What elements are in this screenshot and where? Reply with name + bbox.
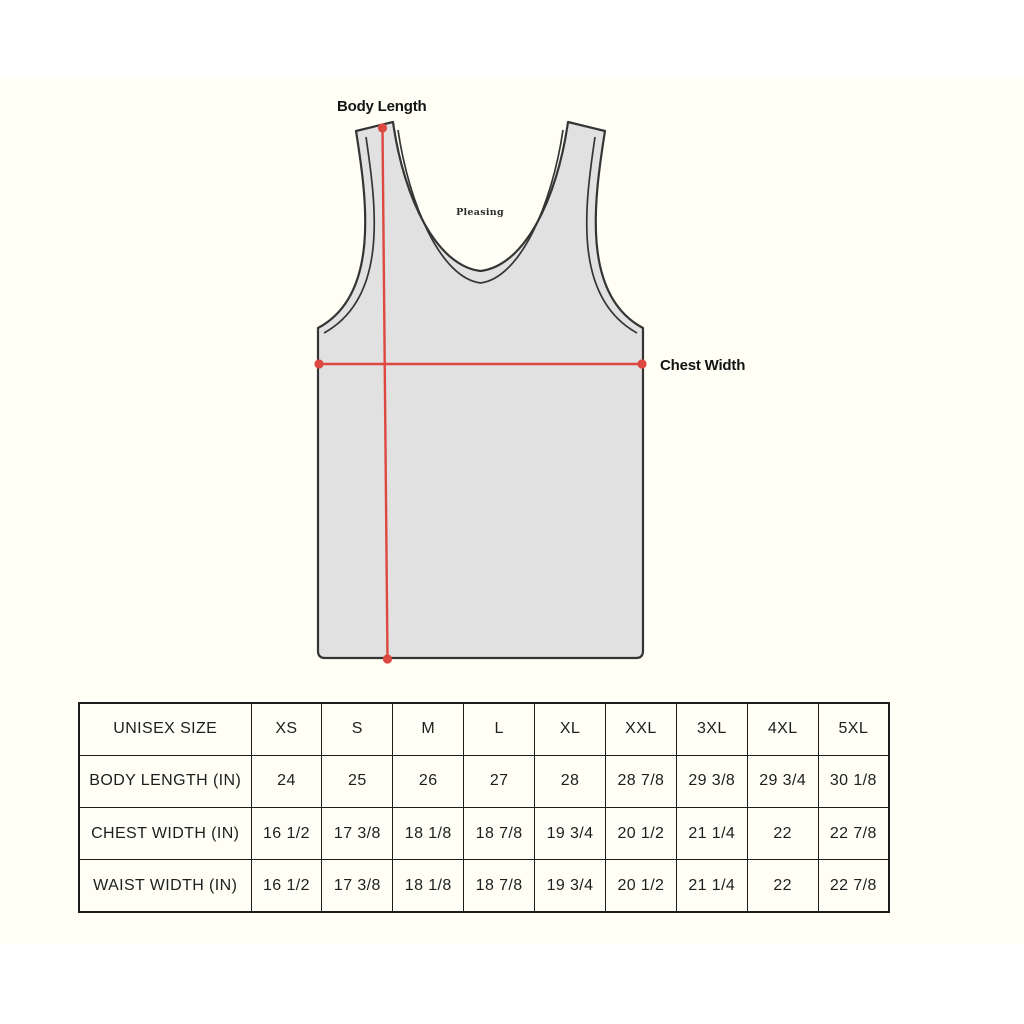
table-cell: 5XL xyxy=(818,703,889,755)
table-cell: XS xyxy=(251,703,322,755)
table-cell: 18 7/8 xyxy=(464,860,535,912)
table-row-waist-width: WAIST WIDTH (IN) 16 1/2 17 3/8 18 1/8 18… xyxy=(79,860,889,912)
table-cell: 29 3/8 xyxy=(676,755,747,807)
table-cell: M xyxy=(393,703,464,755)
table-cell: 18 1/8 xyxy=(393,808,464,860)
table-cell: 17 3/8 xyxy=(322,808,393,860)
table-cell: XXL xyxy=(605,703,676,755)
table-header-cell: CHEST WIDTH (IN) xyxy=(79,808,251,860)
table-row-body-length: BODY LENGTH (IN) 24 25 26 27 28 28 7/8 2… xyxy=(79,755,889,807)
table-cell: 29 3/4 xyxy=(747,755,818,807)
table-cell: 16 1/2 xyxy=(251,860,322,912)
table-cell: 21 1/4 xyxy=(676,808,747,860)
table-cell: L xyxy=(464,703,535,755)
table-cell: 20 1/2 xyxy=(605,808,676,860)
brand-logo: Pleasing xyxy=(456,207,504,218)
table-cell: 28 xyxy=(535,755,606,807)
table-cell: 22 xyxy=(747,808,818,860)
table-header-cell: WAIST WIDTH (IN) xyxy=(79,860,251,912)
table-cell: S xyxy=(322,703,393,755)
body-length-label: Body Length xyxy=(337,98,426,115)
table-cell: 20 1/2 xyxy=(605,860,676,912)
table-cell: 18 7/8 xyxy=(464,808,535,860)
table-cell: 22 xyxy=(747,860,818,912)
table-cell: 28 7/8 xyxy=(605,755,676,807)
table-header-cell: UNISEX SIZE xyxy=(79,703,251,755)
table-cell: 22 7/8 xyxy=(818,860,889,912)
table-cell: 27 xyxy=(464,755,535,807)
table-row-sizes: UNISEX SIZE XS S M L XL XXL 3XL 4XL 5XL xyxy=(79,703,889,755)
table-cell: 26 xyxy=(393,755,464,807)
chest-width-label: Chest Width xyxy=(660,357,745,374)
table-row-chest-width: CHEST WIDTH (IN) 16 1/2 17 3/8 18 1/8 18… xyxy=(79,808,889,860)
table-cell: 3XL xyxy=(676,703,747,755)
table-cell: 21 1/4 xyxy=(676,860,747,912)
table-cell: 16 1/2 xyxy=(251,808,322,860)
table-cell: 4XL xyxy=(747,703,818,755)
table-header-cell: BODY LENGTH (IN) xyxy=(79,755,251,807)
table-cell: XL xyxy=(535,703,606,755)
size-table: UNISEX SIZE XS S M L XL XXL 3XL 4XL 5XL … xyxy=(78,702,890,913)
table-cell: 24 xyxy=(251,755,322,807)
table-cell: 19 3/4 xyxy=(535,808,606,860)
table-cell: 18 1/8 xyxy=(393,860,464,912)
table-cell: 17 3/8 xyxy=(322,860,393,912)
table-cell: 25 xyxy=(322,755,393,807)
table-cell: 22 7/8 xyxy=(818,808,889,860)
table-cell: 19 3/4 xyxy=(535,860,606,912)
table-cell: 30 1/8 xyxy=(818,755,889,807)
